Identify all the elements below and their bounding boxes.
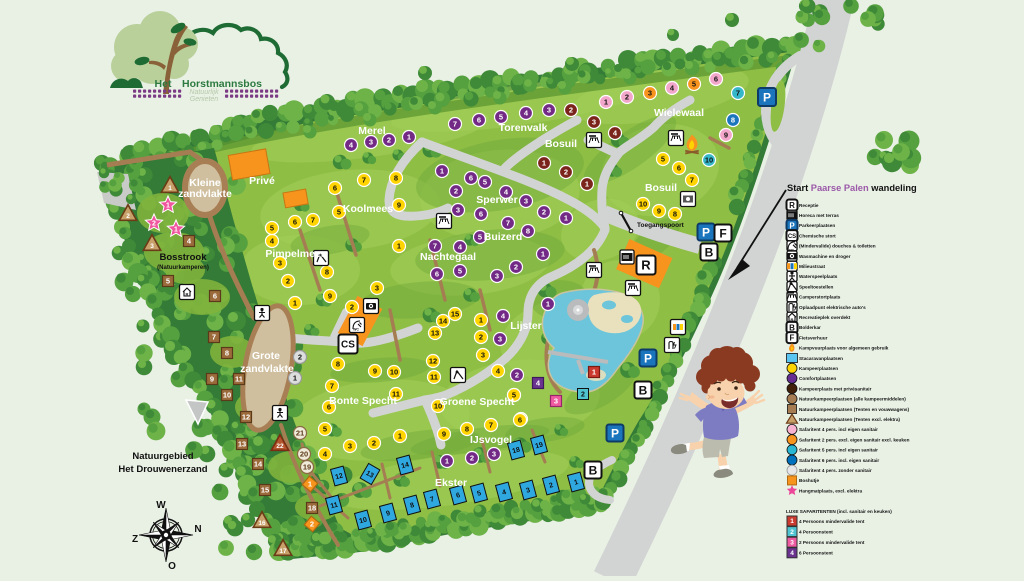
svg-text:LUXE SAFARITENTEN (incl. sanit: LUXE SAFARITENTEN (incl. sanitair en keu…: [786, 509, 892, 514]
svg-text:CS: CS: [788, 234, 796, 240]
svg-text:5: 5: [337, 208, 341, 217]
svg-text:13: 13: [431, 329, 439, 338]
svg-text:Safaritent 5 pers. incl eigen: Safaritent 5 pers. incl eigen sanitair: [799, 448, 878, 453]
svg-text:3: 3: [369, 138, 373, 147]
svg-text:2: 2: [470, 454, 474, 463]
svg-text:Buizerd: Buizerd: [484, 231, 523, 243]
svg-text:10: 10: [705, 156, 713, 165]
svg-text:Bosstrook: Bosstrook: [160, 252, 208, 263]
svg-text:7: 7: [212, 333, 216, 342]
svg-text:5: 5: [323, 425, 327, 434]
svg-text:1: 1: [585, 180, 589, 189]
svg-text:Lijster: Lijster: [510, 320, 542, 332]
svg-text:Bosuil: Bosuil: [545, 138, 577, 150]
svg-text:P: P: [789, 221, 795, 230]
svg-text:Natuurkampeerplaatsen (Tenten: Natuurkampeerplaatsen (Tenten en vouwwag…: [799, 407, 910, 412]
svg-text:20: 20: [300, 450, 308, 459]
svg-text:19: 19: [303, 463, 311, 472]
svg-text:Safaritent 4 pers. zonder sani: Safaritent 4 pers. zonder sanitair: [799, 468, 872, 473]
svg-text:6: 6: [469, 174, 473, 183]
svg-text:P: P: [702, 225, 710, 239]
svg-text:P: P: [644, 351, 652, 365]
svg-text:Kampeerplaatsen: Kampeerplaatsen: [799, 366, 838, 371]
svg-text:12: 12: [429, 357, 437, 366]
svg-text:Bonte Specht: Bonte Specht: [329, 395, 397, 407]
svg-text:R: R: [641, 258, 651, 273]
svg-text:6 Persoonstent: 6 Persoonstent: [799, 551, 833, 556]
svg-text:2: 2: [372, 439, 376, 448]
svg-text:1: 1: [293, 374, 297, 383]
svg-text:Toegangspoort: Toegangspoort: [637, 222, 685, 229]
svg-text:Stacaravanplaatsen: Stacaravanplaatsen: [799, 356, 843, 361]
svg-text:2: 2: [542, 208, 546, 217]
svg-text:7: 7: [489, 421, 493, 430]
svg-text:2: 2: [515, 371, 519, 380]
svg-text:B: B: [639, 383, 648, 397]
svg-text:8: 8: [225, 349, 229, 358]
svg-text:3: 3: [278, 259, 282, 268]
svg-text:4 Persoonstent: 4 Persoonstent: [799, 529, 833, 534]
svg-text:Safaritent 2 pers. excl. eigen: Safaritent 2 pers. excl. eigen sanitair …: [799, 437, 910, 442]
svg-text:1: 1: [542, 159, 546, 168]
svg-text:Sperwer: Sperwer: [476, 194, 517, 206]
svg-text:IJsvogel: IJsvogel: [470, 434, 512, 446]
svg-text:Merel: Merel: [358, 125, 386, 137]
svg-text:Bosuil: Bosuil: [645, 182, 677, 194]
svg-text:Ekster: Ekster: [435, 477, 467, 489]
svg-text:(Natuurkamperen): (Natuurkamperen): [157, 265, 209, 271]
svg-text:8: 8: [325, 268, 329, 277]
svg-text:Torenvalk: Torenvalk: [499, 122, 548, 134]
svg-text:14: 14: [254, 460, 263, 469]
svg-text:Fietsverhuur: Fietsverhuur: [799, 335, 828, 340]
svg-text:10: 10: [639, 200, 647, 209]
svg-text:10: 10: [223, 391, 231, 400]
svg-text:B: B: [789, 323, 795, 332]
svg-text:2: 2: [479, 333, 483, 342]
svg-text:17: 17: [279, 548, 287, 555]
svg-text:Bolderkar: Bolderkar: [799, 325, 821, 330]
svg-text:1: 1: [592, 368, 596, 377]
svg-text:Speeltoestellen: Speeltoestellen: [799, 284, 834, 289]
svg-text:Parkeerplaatsen: Parkeerplaatsen: [799, 223, 835, 228]
svg-text:3: 3: [481, 351, 485, 360]
svg-text:3: 3: [648, 89, 652, 98]
svg-text:7: 7: [453, 120, 457, 129]
svg-text:Camperstortplaats: Camperstortplaats: [799, 295, 841, 300]
svg-text:5: 5: [499, 113, 503, 122]
svg-text:4 Persoons mindervalide tent: 4 Persoons mindervalide tent: [799, 519, 865, 524]
svg-text:Genieten: Genieten: [190, 96, 219, 103]
svg-text:5: 5: [478, 233, 482, 242]
svg-text:Recreatieplek overdekt: Recreatieplek overdekt: [799, 315, 851, 320]
svg-text:15: 15: [451, 310, 459, 319]
svg-text:15: 15: [261, 486, 269, 495]
svg-text:1: 1: [541, 250, 545, 259]
svg-text:F: F: [719, 226, 726, 240]
svg-text:2 Persoons mindervalide tent: 2 Persoons mindervalide tent: [799, 540, 865, 545]
svg-text:1: 1: [397, 242, 401, 251]
svg-text:2: 2: [350, 303, 354, 312]
svg-text:Kampvuurplaats voor algemeen g: Kampvuurplaats voor algemeen gebruik: [799, 346, 889, 351]
svg-text:1: 1: [440, 167, 444, 176]
svg-text:1: 1: [790, 518, 794, 525]
svg-text:Grote: Grote: [252, 350, 280, 362]
svg-text:1: 1: [546, 300, 550, 309]
svg-text:2: 2: [298, 353, 302, 362]
svg-text:3: 3: [554, 397, 558, 406]
svg-text:3: 3: [547, 106, 551, 115]
svg-text:W: W: [156, 500, 166, 511]
svg-text:2: 2: [152, 221, 156, 228]
svg-text:1: 1: [479, 316, 483, 325]
svg-text:1: 1: [604, 98, 608, 107]
svg-text:6: 6: [213, 292, 217, 301]
svg-text:2: 2: [564, 168, 568, 177]
svg-text:6: 6: [333, 184, 337, 193]
svg-text:Koolmees: Koolmees: [343, 203, 393, 215]
svg-text:2: 2: [625, 93, 629, 102]
svg-text:Wielewaal: Wielewaal: [654, 107, 704, 119]
svg-text:Pimpelmees: Pimpelmees: [265, 248, 326, 260]
svg-text:Comfortplaatsen: Comfortplaatsen: [799, 376, 836, 381]
svg-text:7: 7: [690, 176, 694, 185]
svg-text:Milieustraat: Milieustraat: [799, 264, 825, 269]
svg-text:1: 1: [564, 214, 568, 223]
svg-text:9: 9: [442, 430, 446, 439]
svg-text:Oplaadpunt elektrische auto's: Oplaadpunt elektrische auto's: [799, 305, 866, 310]
svg-text:5: 5: [166, 277, 170, 286]
svg-text:8: 8: [336, 360, 340, 369]
svg-text:6: 6: [293, 218, 297, 227]
svg-text:8: 8: [394, 174, 398, 183]
svg-text:5: 5: [661, 155, 665, 164]
svg-text:11: 11: [430, 373, 438, 382]
svg-text:Waterspeelplaats: Waterspeelplaats: [799, 274, 838, 279]
svg-text:Hangmatplaats, excl. elektra: Hangmatplaats, excl. elektra: [799, 488, 862, 493]
svg-text:2: 2: [790, 529, 794, 536]
svg-text:zandvlakte: zandvlakte: [240, 363, 294, 375]
svg-text:P: P: [763, 90, 771, 104]
svg-text:Groene Specht: Groene Specht: [440, 396, 515, 408]
svg-text:18: 18: [308, 504, 316, 513]
svg-text:3: 3: [375, 284, 379, 293]
svg-text:2: 2: [514, 263, 518, 272]
svg-text:Het: Het: [155, 78, 172, 90]
svg-text:3: 3: [524, 197, 528, 206]
svg-text:16: 16: [258, 520, 266, 527]
svg-text:6: 6: [477, 116, 481, 125]
svg-text:Privé: Privé: [249, 175, 275, 187]
svg-text:B: B: [589, 463, 598, 477]
svg-text:9: 9: [657, 207, 661, 216]
svg-text:Horeca met terras: Horeca met terras: [799, 213, 839, 218]
svg-text:9: 9: [724, 131, 728, 140]
svg-text:5: 5: [270, 224, 274, 233]
svg-text:B: B: [705, 245, 714, 259]
svg-text:Start Paarse Palen wandeling: Start Paarse Palen wandeling: [787, 183, 917, 193]
svg-text:13: 13: [238, 440, 246, 449]
svg-text:WC: WC: [353, 328, 359, 332]
svg-text:6: 6: [435, 270, 439, 279]
svg-text:Nachtegaal: Nachtegaal: [420, 251, 476, 263]
svg-text:(Mindervalide) douches & toile: (Mindervalide) douches & toiletten: [799, 244, 876, 249]
svg-text:9: 9: [397, 201, 401, 210]
svg-text:3: 3: [348, 442, 352, 451]
svg-text:1: 1: [407, 133, 411, 142]
svg-text:9: 9: [210, 375, 214, 384]
svg-text:Natuurkampeerplaatsen (Tenten: Natuurkampeerplaatsen (Tenten excl. elek…: [799, 417, 900, 422]
svg-text:6: 6: [479, 210, 483, 219]
svg-text:5: 5: [483, 178, 487, 187]
svg-text:1: 1: [398, 432, 402, 441]
svg-text:Wasmachine en droger: Wasmachine en droger: [799, 254, 851, 259]
svg-text:F: F: [790, 334, 795, 343]
svg-text:7: 7: [433, 242, 437, 251]
svg-text:7: 7: [330, 382, 334, 391]
svg-text:Safaritent 6 pers. incl. eigen: Safaritent 6 pers. incl. eigen sanitair: [799, 458, 879, 463]
svg-text:3: 3: [790, 539, 794, 546]
svg-text:12: 12: [242, 413, 250, 422]
svg-text:zandvlakte: zandvlakte: [178, 188, 232, 200]
svg-text:CS: CS: [341, 340, 355, 351]
svg-text:2: 2: [387, 136, 391, 145]
svg-text:4: 4: [790, 550, 794, 557]
svg-text:6: 6: [677, 164, 681, 173]
svg-text:7: 7: [736, 89, 740, 98]
svg-text:8: 8: [731, 116, 735, 125]
svg-text:1: 1: [174, 227, 178, 234]
svg-text:21: 21: [296, 429, 304, 438]
svg-text:R: R: [789, 201, 795, 210]
svg-text:R: R: [186, 292, 189, 297]
svg-text:1: 1: [293, 299, 297, 308]
svg-text:Safaritent 4 pers. incl eigen: Safaritent 4 pers. incl eigen sanitair: [799, 427, 878, 432]
svg-text:2: 2: [286, 277, 290, 286]
svg-text:Het Drouwenerzand: Het Drouwenerzand: [118, 464, 207, 475]
svg-text:6: 6: [518, 416, 522, 425]
svg-text:3: 3: [492, 450, 496, 459]
svg-text:1: 1: [308, 480, 312, 489]
svg-text:1: 1: [445, 457, 449, 466]
svg-text:8: 8: [465, 425, 469, 434]
svg-text:2: 2: [454, 187, 458, 196]
svg-text:7: 7: [506, 219, 510, 228]
svg-text:5: 5: [458, 267, 462, 276]
svg-text:3: 3: [495, 272, 499, 281]
svg-text:2: 2: [581, 392, 585, 399]
svg-text:N: N: [194, 524, 201, 535]
svg-text:3: 3: [498, 335, 502, 344]
svg-text:3: 3: [592, 118, 596, 127]
svg-text:9: 9: [373, 367, 377, 376]
svg-text:1: 1: [166, 203, 170, 210]
svg-text:Kampeerplaats met privésanitai: Kampeerplaats met privésanitair: [799, 386, 872, 391]
svg-text:Natuurgebied: Natuurgebied: [132, 451, 193, 462]
svg-text:Boshutje: Boshutje: [799, 478, 819, 483]
svg-text:22: 22: [276, 443, 284, 450]
svg-text:Natuurlijk: Natuurlijk: [189, 89, 219, 96]
svg-text:Receptie: Receptie: [799, 203, 819, 208]
svg-text:8: 8: [673, 210, 677, 219]
svg-text:7: 7: [362, 176, 366, 185]
svg-text:1: 1: [168, 185, 172, 192]
svg-text:3: 3: [150, 243, 154, 250]
svg-text:5: 5: [692, 80, 696, 89]
svg-text:10: 10: [390, 368, 398, 377]
svg-text:6: 6: [714, 75, 718, 84]
svg-text:O: O: [168, 561, 176, 572]
svg-text:7: 7: [311, 216, 315, 225]
svg-text:Chemische stort: Chemische stort: [799, 233, 836, 238]
svg-text:9: 9: [328, 292, 332, 301]
svg-text:P: P: [611, 426, 619, 440]
svg-text:14: 14: [439, 317, 448, 326]
svg-text:Natuurkampeerplaatsen (alle ka: Natuurkampeerplaatsen (alle kampeermidde…: [799, 397, 906, 402]
svg-text:3: 3: [456, 206, 460, 215]
svg-text:8: 8: [526, 227, 530, 236]
svg-text:11: 11: [235, 375, 243, 384]
svg-text:2: 2: [569, 106, 573, 115]
svg-text:2: 2: [126, 213, 130, 220]
svg-text:2: 2: [310, 520, 314, 529]
svg-text:Z: Z: [132, 534, 138, 545]
